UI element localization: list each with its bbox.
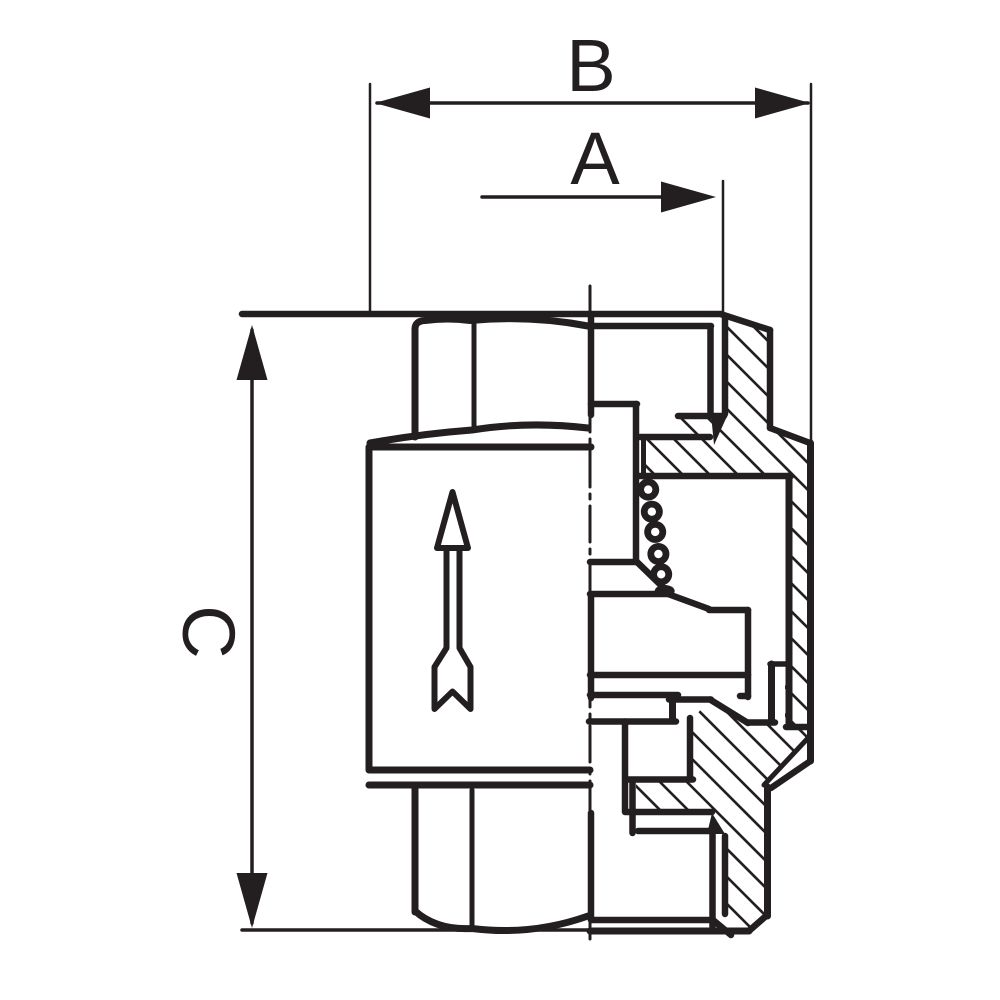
- svg-text:C: C: [167, 605, 250, 658]
- svg-text:B: B: [566, 24, 615, 107]
- svg-text:A: A: [570, 117, 620, 200]
